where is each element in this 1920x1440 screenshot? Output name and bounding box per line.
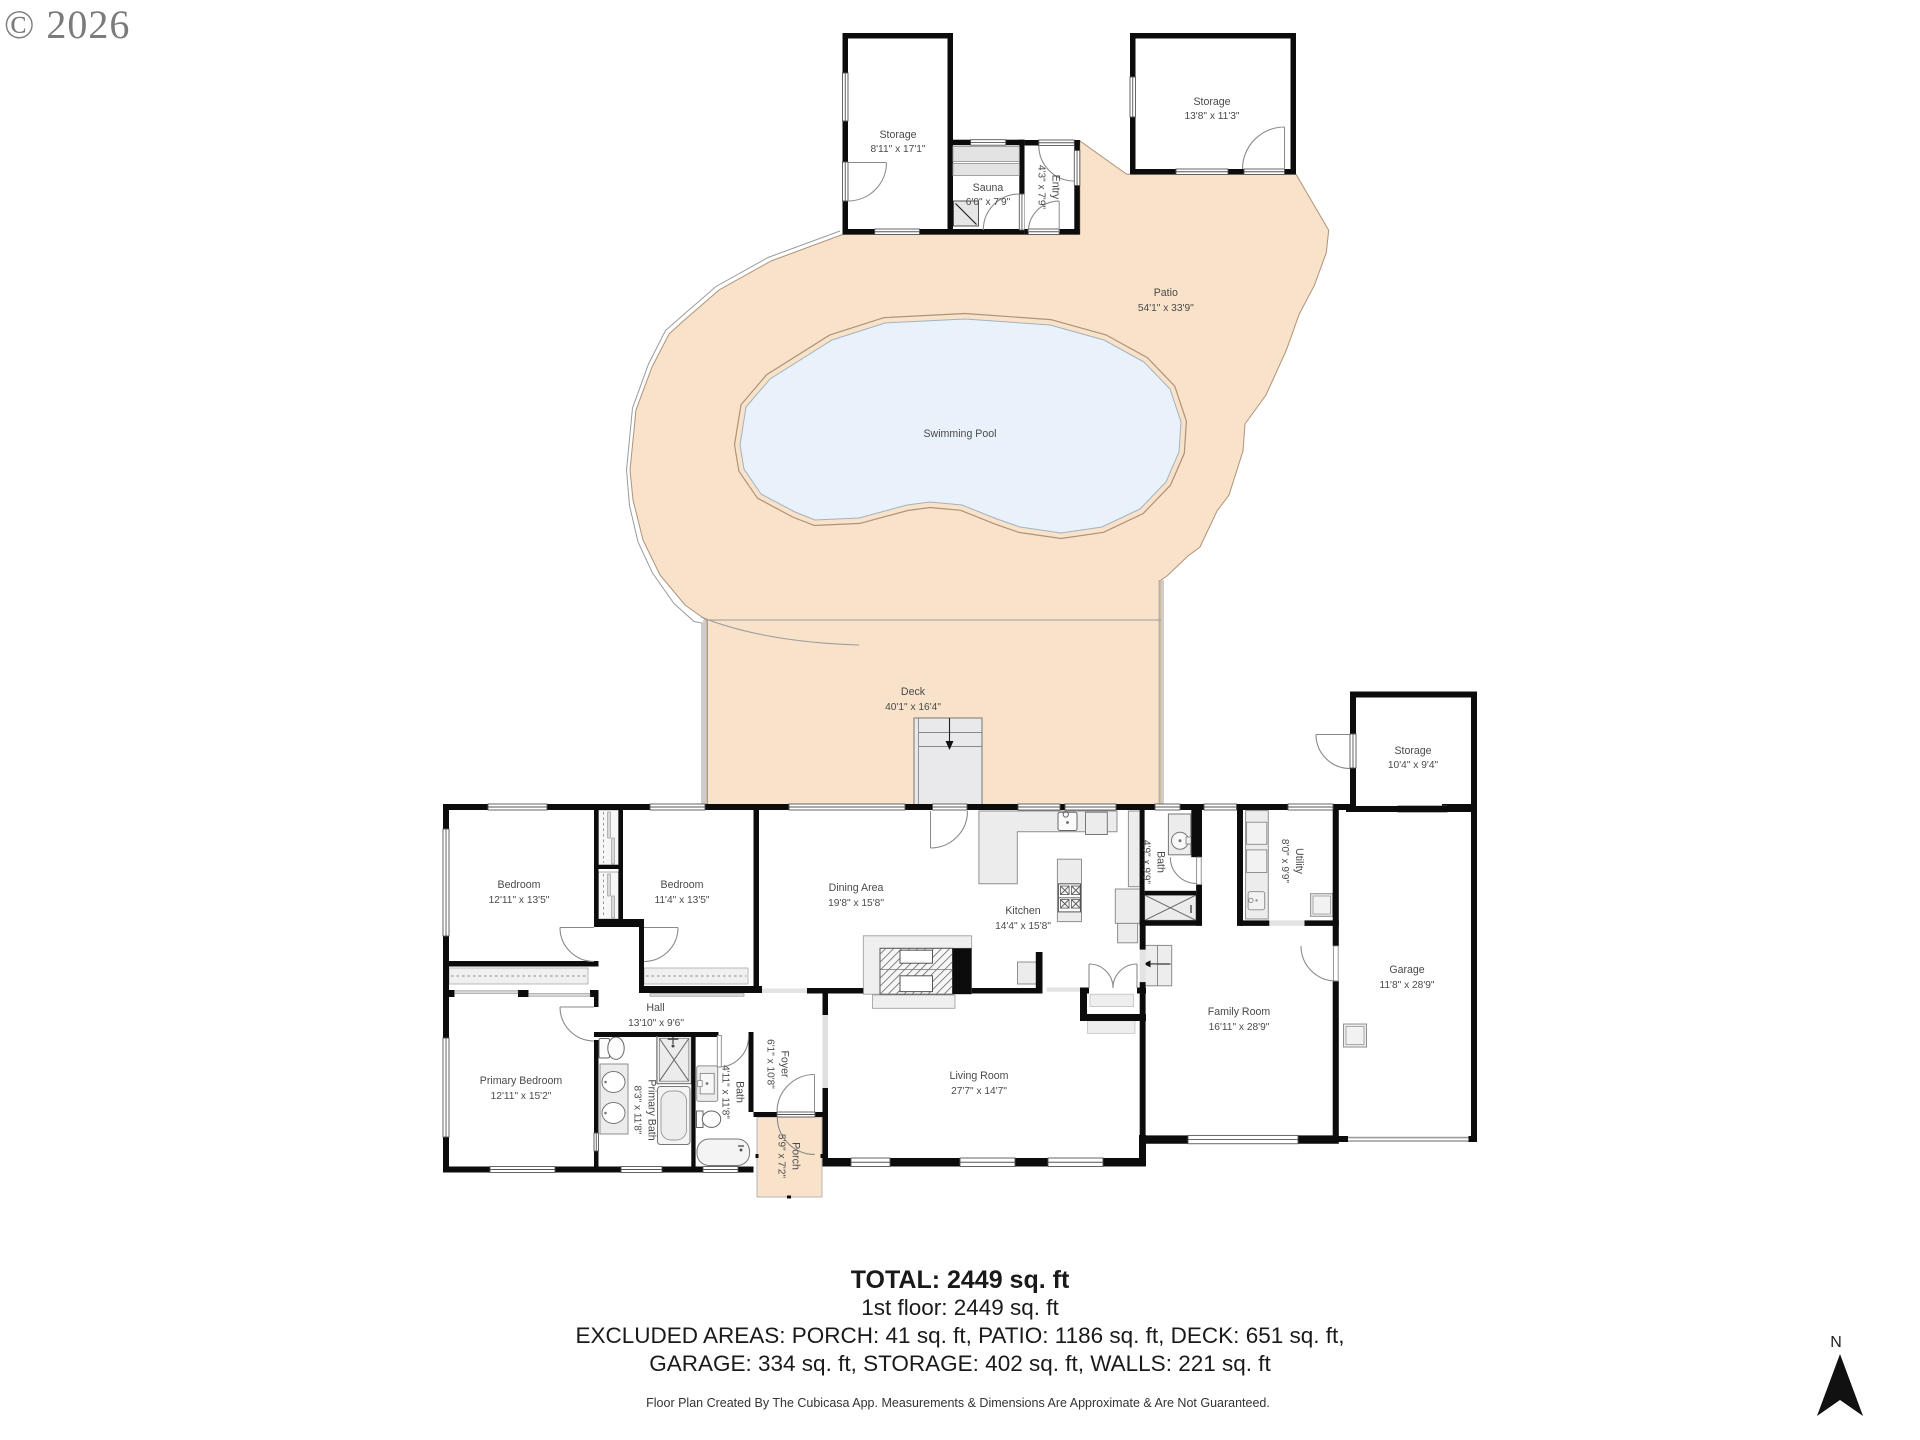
- svg-text:Family Room: Family Room: [1208, 1006, 1271, 1018]
- svg-text:Garage: Garage: [1389, 964, 1424, 976]
- svg-text:Storage: Storage: [879, 129, 916, 141]
- svg-text:Living Room: Living Room: [950, 1070, 1009, 1082]
- svg-text:11'8" x 28'9": 11'8" x 28'9": [1379, 980, 1434, 991]
- svg-text:Utility: Utility: [1293, 848, 1305, 875]
- svg-text:8'11" x 17'1": 8'11" x 17'1": [870, 144, 925, 155]
- svg-text:Bedroom: Bedroom: [498, 879, 541, 891]
- svg-text:Hall: Hall: [646, 1002, 664, 1014]
- svg-text:GARAGE: 334 sq. ft, STORAGE: 4: GARAGE: 334 sq. ft, STORAGE: 402 sq. ft,…: [649, 1351, 1271, 1376]
- svg-text:54'1" x 33'9": 54'1" x 33'9": [1138, 303, 1194, 314]
- svg-text:12'11" x 13'5": 12'11" x 13'5": [489, 895, 550, 906]
- svg-text:Primary Bath: Primary Bath: [645, 1079, 657, 1140]
- svg-text:13'8" x 11'3": 13'8" x 11'3": [1184, 111, 1239, 122]
- svg-text:Deck: Deck: [901, 686, 926, 698]
- svg-text:10'4" x 9'4": 10'4" x 9'4": [1388, 760, 1439, 771]
- svg-text:40'1" x 16'4": 40'1" x 16'4": [885, 702, 941, 713]
- svg-text:8'0" x 9'9": 8'0" x 9'9": [1279, 839, 1290, 884]
- svg-text:4'9" x 9'9": 4'9" x 9'9": [1140, 840, 1151, 885]
- svg-text:Bath: Bath: [1154, 851, 1166, 873]
- svg-text:TOTAL: 2449 sq. ft: TOTAL: 2449 sq. ft: [851, 1266, 1070, 1294]
- svg-text:Bedroom: Bedroom: [661, 879, 704, 891]
- svg-text:11'4" x 13'5": 11'4" x 13'5": [654, 895, 709, 906]
- svg-text:5'9" x 7'2": 5'9" x 7'2": [775, 1134, 786, 1179]
- svg-text:14'4" x 15'8": 14'4" x 15'8": [995, 921, 1051, 932]
- svg-text:6'0" x 7'9": 6'0" x 7'9": [966, 197, 1011, 208]
- svg-text:4'3" x 7'9": 4'3" x 7'9": [1035, 165, 1046, 210]
- svg-text:Kitchen: Kitchen: [1005, 905, 1040, 917]
- svg-text:Storage: Storage: [1394, 745, 1431, 757]
- svg-text:© 2026: © 2026: [4, 2, 130, 47]
- svg-text:Bath: Bath: [733, 1081, 745, 1103]
- svg-text:Primary Bedroom: Primary Bedroom: [480, 1075, 563, 1087]
- svg-text:Porch: Porch: [789, 1142, 801, 1170]
- svg-text:Foyer: Foyer: [778, 1050, 790, 1078]
- svg-text:4'11" x 11'8": 4'11" x 11'8": [719, 1065, 730, 1119]
- svg-text:Storage: Storage: [1193, 96, 1230, 108]
- svg-text:16'11" x 28'9": 16'11" x 28'9": [1209, 1022, 1270, 1033]
- svg-text:27'7" x 14'7": 27'7" x 14'7": [951, 1086, 1007, 1097]
- svg-text:EXCLUDED AREAS: PORCH: 41 sq.: EXCLUDED AREAS: PORCH: 41 sq. ft, PATIO:…: [575, 1323, 1344, 1348]
- svg-text:6'1" x 10'8": 6'1" x 10'8": [764, 1039, 775, 1089]
- svg-text:13'10" x 9'6": 13'10" x 9'6": [628, 1018, 684, 1029]
- svg-text:Swimming Pool: Swimming Pool: [923, 428, 996, 440]
- svg-text:12'11" x 15'2": 12'11" x 15'2": [491, 1091, 552, 1102]
- svg-text:8'3" x 11'8": 8'3" x 11'8": [631, 1086, 642, 1135]
- svg-text:Sauna: Sauna: [973, 182, 1004, 194]
- svg-text:1st floor: 2449 sq. ft: 1st floor: 2449 sq. ft: [861, 1295, 1059, 1320]
- svg-text:Dining Area: Dining Area: [829, 882, 884, 894]
- svg-text:Patio: Patio: [1154, 287, 1178, 299]
- svg-text:Entry: Entry: [1049, 175, 1061, 200]
- svg-text:19'8" x 15'8": 19'8" x 15'8": [828, 898, 884, 909]
- svg-text:N: N: [1830, 1334, 1842, 1351]
- svg-text:Floor Plan Created By The Cubi: Floor Plan Created By The Cubicasa App. …: [646, 1396, 1270, 1410]
